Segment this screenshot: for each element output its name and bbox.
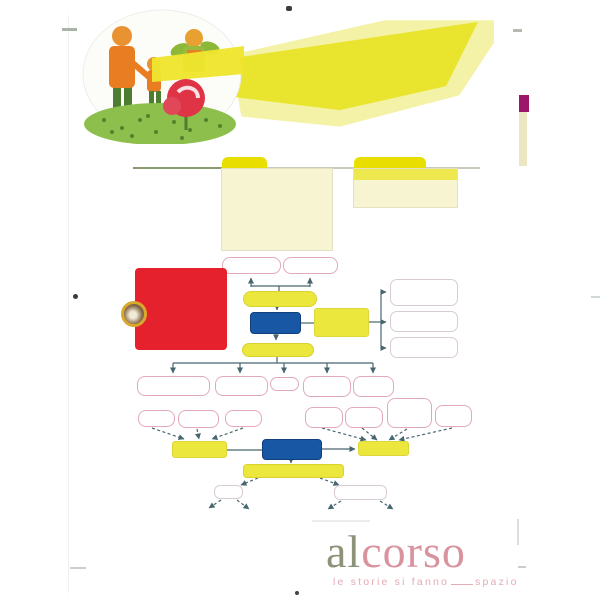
node-side-2 xyxy=(390,311,458,332)
node-row2-2 xyxy=(178,410,219,428)
tagline-underscore-line xyxy=(451,575,473,585)
brand-word-al: al xyxy=(326,526,361,577)
folder-2-panel xyxy=(353,168,458,208)
tagline-pre: le storie si fanno xyxy=(333,576,449,588)
grass xyxy=(84,103,236,144)
node-yellow-bottom-right xyxy=(358,441,409,456)
gold-coin-badge-icon xyxy=(121,301,147,327)
registration-mark-left xyxy=(73,294,78,299)
scanned-book-page: alcorso le storie si fanno spazio xyxy=(0,0,600,600)
node-row1-1 xyxy=(137,376,210,396)
edge-dash xyxy=(513,29,522,32)
node-row2-3 xyxy=(225,410,262,427)
node-row2-4 xyxy=(305,407,343,428)
brand-word-corso: corso xyxy=(361,526,466,577)
tagline-post: spazio xyxy=(475,576,519,588)
section-divider-left xyxy=(133,167,222,169)
node-row1-5 xyxy=(353,376,394,397)
cream-edge-strip xyxy=(519,112,527,166)
node-yellow-bottom-left xyxy=(172,441,227,458)
node-row2-7 xyxy=(435,405,472,427)
node-row1-3 xyxy=(270,377,299,391)
folder-2-highlight-strip xyxy=(354,169,457,180)
node-blue-main xyxy=(250,312,301,334)
node-yellow-bar-2 xyxy=(242,343,314,357)
node-yellow-bar-1 xyxy=(243,291,317,307)
node-row2-5 xyxy=(345,407,383,428)
page-edge-line xyxy=(68,15,69,593)
node-row1-2 xyxy=(215,376,268,396)
node-leaf-left xyxy=(214,485,243,499)
node-row2-1 xyxy=(138,410,175,427)
publisher-tagline: le storie si fanno spazio xyxy=(333,575,523,588)
magenta-edge-tab xyxy=(519,95,529,112)
node-row2-6 xyxy=(387,398,432,428)
node-yellow-side xyxy=(314,308,369,337)
publisher-logo: alcorso xyxy=(326,529,526,575)
node-top-2 xyxy=(283,257,338,274)
node-blue-bottom xyxy=(262,439,322,460)
crop-mark-right xyxy=(591,296,600,298)
registration-mark-top xyxy=(286,6,292,11)
registration-dot-bottom xyxy=(295,591,299,595)
node-leaf-right xyxy=(334,485,387,500)
node-side-3 xyxy=(390,337,458,358)
node-row1-4 xyxy=(303,376,351,397)
folder-1-panel xyxy=(221,168,333,251)
faint-line-above-brand xyxy=(312,520,370,522)
node-top-1 xyxy=(222,257,281,274)
node-side-1 xyxy=(390,279,458,306)
crop-mark-bottom-left xyxy=(70,567,86,569)
red-feature-box xyxy=(135,268,227,350)
node-yellow-footer-bar xyxy=(243,464,344,478)
family-garden-illustration xyxy=(82,8,244,144)
crop-mark-top-left xyxy=(62,28,77,31)
